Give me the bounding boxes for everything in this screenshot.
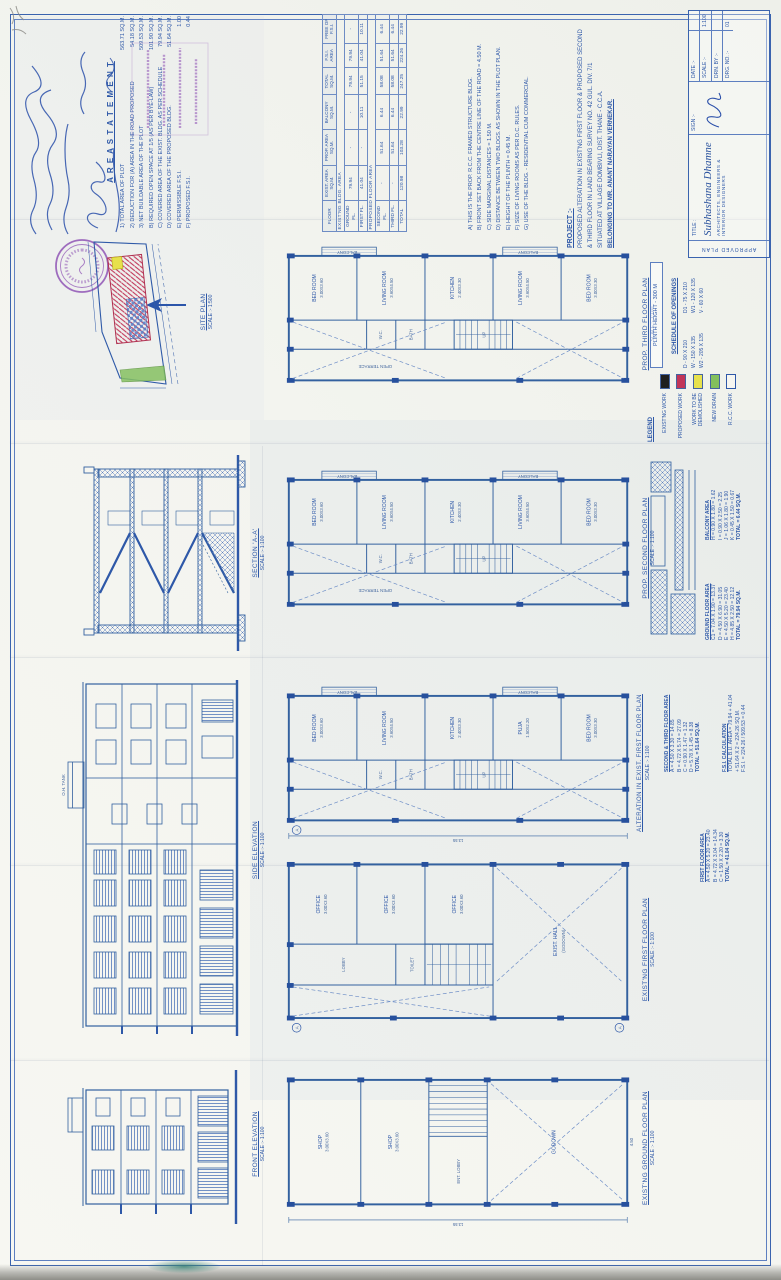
cell: 51.64	[376, 130, 390, 165]
drawing-scale: SCALE :- 1:100	[650, 1072, 656, 1224]
room-label: OPEN TERRACE	[358, 364, 392, 369]
title-block: APPROVED PLAN TITLE : Subhashana Dhamne …	[688, 10, 770, 258]
drawing-title: FRONT ELEVATION	[252, 1084, 260, 1204]
section-marker: A	[292, 826, 301, 835]
drawing-scale: SCALE :- 1:100	[650, 867, 656, 1032]
plan-label-ground: EXIST'NG GROUND FLOOR PLAN SCALE :- 1:10…	[642, 1072, 657, 1224]
field-value	[689, 11, 699, 30]
cell: -	[376, 165, 390, 201]
room-label: BED ROOM	[586, 714, 592, 741]
room-dim: 3.00X3.60	[325, 1132, 330, 1152]
room-label: SHOP	[388, 1134, 394, 1149]
calc-line: TOTAL = 51.64 SQ.M.	[695, 660, 701, 772]
room-dim: 1.50X2.20	[525, 718, 530, 738]
alteration-first-floor-plan-drawing: 13.55 A BED ROOM 3.00X3.60 LIVING ROOM 3…	[283, 678, 635, 848]
room-label: LIVING ROOM	[382, 495, 388, 529]
cell: 6.44	[390, 15, 399, 44]
room-dim: 3.00X3.60	[319, 502, 324, 522]
cell: 6.44	[376, 95, 390, 130]
table-group-header: PROPOSED FLOOR AREA	[367, 15, 376, 232]
firm-subtitle: ARCHITECTS, ENGINEERS & INTERIOR DESIGNE…	[716, 139, 726, 236]
cell: 6.44	[376, 15, 390, 44]
note-line: C) SIDE MARGINAL DISTANCES = 1.50 M.	[487, 16, 494, 230]
firm-name: Subhashana Dhamne	[702, 139, 714, 236]
area-item-value: 1.00	[177, 16, 184, 27]
cell: 79.94	[345, 165, 359, 201]
legend: LEGEND EXIST'NG WORK PROPOSED WORK WORK …	[648, 374, 742, 442]
note-line: B) FRONT SET BACK FROM THE CENTRE LINE O…	[477, 16, 484, 230]
room-label: LIVING ROOM	[518, 271, 524, 305]
field-label: DRN. BY :-	[712, 30, 722, 81]
room-label: (GODOWN)	[561, 929, 566, 953]
cell: 6.44	[390, 95, 399, 130]
calc-line: TOTAL = 79.94 SQ.M.	[736, 548, 742, 640]
cell: 41.04	[359, 165, 368, 201]
notes-block: A) THIS IS THE PROP. R.C.C. FRAMED STRUC…	[468, 16, 534, 230]
calc-line: F.S.I. = 224.26 / 509.53 = 0.44	[741, 660, 747, 772]
room-label: BED ROOM	[586, 274, 592, 301]
fold-crease	[10, 1060, 769, 1061]
legend-swatch	[710, 374, 720, 389]
calc-fsi: F.S.I. CALCULATION TOTAL B.U. AREA = 79.…	[722, 660, 747, 772]
signature-scribble	[697, 91, 727, 131]
cell: TOTAL	[398, 201, 407, 232]
room-label: PUJA	[518, 721, 524, 735]
room-dim: 2.40X3.30	[457, 278, 462, 298]
drawing-scale: SCALE :- 1:500	[208, 260, 214, 364]
cell: 247.25	[398, 68, 407, 95]
room-label: OFFICE	[452, 894, 458, 913]
opening-entry: W2 - 205 X 135	[699, 319, 705, 368]
room-label: BALCONY	[518, 474, 539, 479]
cell: 22.99	[398, 15, 407, 44]
drawing-title: SIDE ELEVATION	[252, 795, 260, 905]
opening-entry: W - 150 X 135	[691, 319, 697, 368]
section-label: SECTION 'A-A' SCALE :- 1:100	[252, 498, 267, 608]
field-row: DRN. BY :-	[711, 11, 722, 81]
room-label: BALCONY	[337, 474, 358, 479]
room-dim: 3.00X3.60	[323, 894, 328, 914]
room-label: SHOP	[318, 1134, 324, 1149]
cell: 51.15	[359, 68, 368, 95]
area-item-label: 1) TOTAL AREA OF PLOT	[120, 54, 127, 228]
field-value: 1:100	[700, 11, 710, 30]
room-label: GODOWN	[551, 1130, 557, 1154]
calc-ground-floor: GROUND FLOOR AREA C1 = 7.04 X 1.90 = 13.…	[705, 548, 743, 640]
table-row: GROUND FL.79.94--79.9479.94-	[345, 15, 359, 232]
col-header: PROP. AREA SQ.M.	[323, 130, 337, 165]
existing-building-footprint	[126, 297, 148, 339]
rect-stamp	[128, 38, 214, 138]
project-line: PROPOSED ALTERATION IN EXIST'NG FIRST FL…	[578, 16, 586, 248]
dim-length: 13.55	[452, 1222, 463, 1227]
calc-second-third: SECOND & THIRD FLOOR AREA A = 4.50 X 3.3…	[664, 660, 702, 772]
room-dim: 2.40X3.30	[457, 502, 462, 522]
drawing-scale: SCALE :- 1:100	[260, 498, 266, 608]
plinth-note: PLINTH HEIGHT - 300 M	[650, 262, 663, 368]
opening-entry: D - 90 X 210	[683, 319, 689, 368]
svg-text:A: A	[295, 1026, 300, 1029]
pencil-corner-mark	[4, 2, 44, 46]
table-row: THIRD FL.-51.646.4458.0851.646.44	[390, 15, 399, 232]
field-value: 01	[723, 11, 733, 30]
legend-item: EXIST'NG WORK	[660, 374, 670, 442]
dim-length: 13.55	[452, 838, 463, 843]
field-label: DATE :-	[689, 30, 699, 81]
room-label: W.C.	[378, 330, 383, 339]
area-statement-heading: A R E A S T A T E M E N T	[106, 16, 116, 228]
room-label: BATH	[408, 553, 413, 564]
cell: 41.04	[359, 43, 368, 68]
room-dim: 3.00X3.60	[319, 718, 324, 738]
field-row: DRG. NO. :- 01	[722, 11, 733, 81]
legend-label: WORK TO BE DEMOLISHED	[692, 393, 705, 442]
col-header: FREE OF F.S.I.	[323, 15, 337, 44]
area-item-value: 0.44	[186, 16, 193, 27]
title-label: TITLE :	[692, 139, 698, 236]
svg-text:A: A	[295, 829, 300, 832]
room-label: W.C.	[378, 770, 383, 779]
room-label: BALCONY	[518, 690, 539, 695]
room-label: ENT. LOBBY	[456, 1159, 461, 1184]
room-label: BALCONY	[518, 250, 539, 255]
calc-balcony: BALCONY AREA H = 0.90 X 1.80 = 1.62 I = …	[705, 448, 743, 540]
cell: 79.94	[345, 68, 359, 95]
col-header: FLOOR	[323, 201, 337, 232]
dim-width: 4.50	[629, 1137, 634, 1146]
area-item-value: 563.71 SQ.M.	[120, 16, 127, 50]
room-label: BALCONY	[337, 250, 358, 255]
room-label: OFFICE	[316, 894, 322, 913]
site-plan-label: SITE PLAN SCALE :- 1:500	[200, 260, 215, 364]
legend-label: EXIST'NG WORK	[662, 393, 668, 442]
room-dim: 3.00X3.60	[319, 278, 324, 298]
site-plan-drawing	[68, 234, 196, 392]
room-label: KITCHEN	[450, 277, 456, 300]
drawing-title: SITE PLAN	[200, 260, 208, 364]
cell: -	[345, 95, 359, 130]
drawing-title: EXIST'NG FIRST FLOOR PLAN	[642, 867, 650, 1032]
cell: 58.08	[376, 68, 390, 95]
room-dim: 3.00X3.30	[593, 718, 598, 738]
demolition-portion	[112, 257, 123, 270]
room-label: W.C.	[378, 554, 383, 563]
project-line: SITUATED AT VILLAGE DOMBIVLI, DIST. THAN…	[598, 16, 606, 248]
room-label: OFFICE	[384, 894, 390, 913]
field-row: SCALE :- 1:100	[699, 11, 710, 81]
cell: -	[345, 15, 359, 44]
drawing-scale: SCALE :- 1:100	[260, 795, 266, 905]
plan-label-exist-first: EXIST'NG FIRST FLOOR PLAN SCALE :- 1:100	[642, 867, 657, 1032]
project-owner-line: BELONGING TO MR. ANANT NARAYAN VERNEKAR.	[608, 16, 616, 248]
room-label: BATH	[408, 329, 413, 340]
room-label: KITCHEN	[450, 501, 456, 524]
third-floor-plan-drawing: BED ROOM 3.00X3.60 LIVING ROOM 3.60X4.50…	[283, 238, 635, 408]
green-margin	[120, 366, 166, 382]
legend-item: PROPOSED WORK	[676, 374, 686, 442]
side-elevation-label: SIDE ELEVATION SCALE :- 1:100	[252, 795, 267, 905]
fields-cell: DATE :- SCALE :- 1:100 DRN. BY :- DRG. N…	[689, 11, 769, 81]
table-total-row: TOTAL120.98103.2822.99247.25224.2622.99	[398, 15, 407, 232]
field-label: DRG. NO. :-	[723, 30, 733, 81]
field-label: SCALE :-	[700, 30, 710, 81]
col-header: F.S.I. AREA	[323, 43, 337, 68]
room-dim: 2.40X3.30	[457, 718, 462, 738]
legend-item: R.C.C. WORK	[726, 374, 736, 442]
drawing-title: EXIST'NG GROUND FLOOR PLAN	[642, 1072, 650, 1224]
legend-swatch	[660, 374, 670, 389]
legend-label: NEW DRAIN	[712, 393, 718, 442]
room-dim: 3.00X3.30	[593, 502, 598, 522]
drawing-scale: SCALE :- 1:100	[645, 674, 651, 852]
drawing-title: ALTERATION IN EXIST. FIRST FLOOR PLAN	[637, 674, 645, 852]
cell: FIRST FL.	[359, 201, 368, 232]
cell: 10.11	[359, 15, 368, 44]
legend-item: WORK TO BE DEMOLISHED	[692, 374, 705, 442]
firm-cell: TITLE : Subhashana Dhamne ARCHITECTS, EN…	[689, 134, 769, 240]
cell: 224.26	[398, 43, 407, 68]
field-value	[712, 11, 722, 30]
cell: -	[390, 165, 399, 201]
scanned-blueprint-page: FRONT ELEVATION SCALE :- 1:100 O.H. TANK…	[0, 0, 781, 1280]
room-label: LIVING ROOM	[518, 495, 524, 529]
cell: 22.99	[398, 95, 407, 130]
schedule-heading: SCHEDULE OF OPENINGS	[672, 264, 680, 368]
room-label: BATH	[408, 769, 413, 780]
schedule-of-openings: SCHEDULE OF OPENINGS D - 90 X 210 W - 15…	[672, 264, 708, 368]
room-label: LIVING ROOM	[382, 271, 388, 305]
drawing-scale: SCALE :- 1:100	[260, 1084, 266, 1204]
cell: 51.64	[376, 43, 390, 68]
side-elevation-drawing: O.H. TANK	[56, 675, 248, 1040]
ground-floor-plan-drawing: 13.55 4.50 SHOP 3.00X3.60 SHOP 3.00X3.60…	[283, 1062, 635, 1232]
room-label: UP	[481, 556, 486, 562]
cell: 120.98	[398, 165, 407, 201]
room-label: LOBBY	[341, 957, 346, 971]
legend-label: PROPOSED WORK	[678, 393, 684, 442]
sign-cell: SIGN :-	[689, 81, 769, 134]
area-table: FLOOR EXIST. AREA SQ.M. PROP. AREA SQ.M.…	[322, 14, 407, 232]
room-dim: 3.00X3.30	[593, 278, 598, 298]
section-marker: A A	[292, 1023, 624, 1032]
project-block: PROJECT :- PROPOSED ALTERATION IN EXIST'…	[566, 16, 616, 248]
room-dim: 3.00X3.60	[391, 894, 396, 914]
scan-bottom-edge	[0, 1264, 781, 1280]
legend-heading: LEGEND	[648, 374, 656, 442]
cell: 10.11	[359, 95, 368, 130]
room-label: LIVING ROOM	[382, 711, 388, 745]
room-dim: 3.60X4.50	[389, 278, 394, 298]
room-label: TOILET	[409, 957, 414, 972]
room-label: EXIST. HALL	[553, 926, 559, 956]
drawing-title: SECTION 'A-A'	[252, 498, 260, 608]
cell: 51.64	[390, 130, 399, 165]
cell: 103.28	[398, 130, 407, 165]
project-line: & THIRD FLOOR IN LAND BEARING SURVEY NO.…	[588, 16, 596, 248]
cell: SECOND FL.	[376, 201, 390, 232]
fold-crease	[10, 443, 769, 444]
cell: 51.64	[390, 43, 399, 68]
scan-smudge	[148, 1260, 220, 1273]
room-label: BED ROOM	[312, 274, 318, 301]
room-label: UP	[481, 772, 486, 778]
room-label: BED ROOM	[586, 498, 592, 525]
legend-item: NEW DRAIN	[710, 374, 720, 442]
note-line: G) USE OF THE BLDG. - RESIDENTIAL CUM CO…	[524, 16, 531, 230]
fold-crease	[10, 657, 769, 658]
approved-plan-cell: APPROVED PLAN	[689, 240, 769, 257]
cell: 79.94	[345, 43, 359, 68]
svg-text:A: A	[617, 1026, 622, 1029]
room-label: BALCONY	[337, 690, 358, 695]
cell: GROUND FL.	[345, 201, 359, 232]
table-row: SECOND FL.-51.646.4458.0851.646.44	[376, 15, 390, 232]
room-dim: 3.00X3.60	[395, 1132, 400, 1152]
cell: THIRD FL.	[390, 201, 399, 232]
cell: -	[345, 130, 359, 165]
room-dim: 3.60X4.50	[525, 278, 530, 298]
table-row: FIRST FL.41.04-10.1151.1541.0410.11	[359, 15, 368, 232]
wall-section-detail	[645, 450, 701, 640]
room-label: BED ROOM	[312, 498, 318, 525]
legend-swatch	[726, 374, 736, 389]
note-line: F) SIZE OF LIVING ROOMS AS PER D.C. RULE…	[515, 16, 522, 230]
calc-line: TOTAL = 41.04 SQ.M.	[725, 782, 731, 882]
room-label: UP	[481, 332, 486, 338]
room-dim: 3.60X4.50	[389, 502, 394, 522]
front-elevation-label: FRONT ELEVATION SCALE :- 1:100	[252, 1084, 267, 1204]
field-row: DATE :-	[689, 11, 699, 81]
cell: 58.08	[390, 68, 399, 95]
legend-label: R.C.C. WORK	[728, 393, 734, 442]
table-group-header: EXIST'NG BLDG. AREA	[336, 15, 345, 232]
col-header: EXIST. AREA SQ.M.	[323, 165, 337, 201]
room-label: OPEN TERRACE	[358, 588, 392, 593]
front-elevation-drawing	[58, 1066, 248, 1228]
calc-line: TOTAL = 6.44 SQ.M.	[736, 448, 742, 540]
room-label: BED ROOM	[312, 714, 318, 741]
tank-label: O.H. TANK	[61, 774, 66, 796]
opening-entry: V - 60 X 60	[699, 264, 705, 313]
legend-swatch	[693, 374, 703, 389]
room-dim: 3.00X3.60	[459, 894, 464, 914]
exist-first-floor-plan-drawing: A A OFFICE 3.00X3.60 OFFICE 3.00X3.60 OF…	[283, 854, 635, 1044]
cell: -	[359, 130, 368, 165]
room-dim: 3.60X4.50	[525, 502, 530, 522]
legend-swatch	[676, 374, 686, 389]
note-line: A) THIS IS THE PROP. R.C.C. FRAMED STRUC…	[468, 16, 475, 230]
approved-plan-label: APPROVED PLAN	[701, 246, 756, 252]
note-line: E) HEIGHT OF THE PLINTH = 0.45 M.	[506, 16, 513, 230]
second-floor-plan-drawing: BED ROOM 3.00X3.60 LIVING ROOM 3.60X4.50…	[283, 462, 635, 632]
room-label: KITCHEN	[450, 717, 456, 740]
section-drawing	[60, 450, 248, 655]
plan-label-alteration: ALTERATION IN EXIST. FIRST FLOOR PLAN SC…	[637, 674, 651, 852]
room-dim: 3.60X4.50	[389, 718, 394, 738]
drawing-sheet: FRONT ELEVATION SCALE :- 1:100 O.H. TANK…	[0, 0, 781, 1280]
opening-entry: D1 - 75 X 210	[683, 264, 689, 313]
calc-first-floor: FIRST FLOOR AREA A = 4.50 X 5.20 = 23.40…	[700, 782, 731, 882]
project-heading: PROJECT :-	[566, 16, 575, 248]
opening-entry: W1 - 120 X 135	[691, 264, 697, 313]
col-header: BALCONY SQ.M.	[323, 95, 337, 130]
note-line: D) DISTANCE BETWEEN TWO BLDGS. AS SHOWN …	[496, 16, 503, 230]
col-header: TOTAL SQ.M.	[323, 68, 337, 95]
